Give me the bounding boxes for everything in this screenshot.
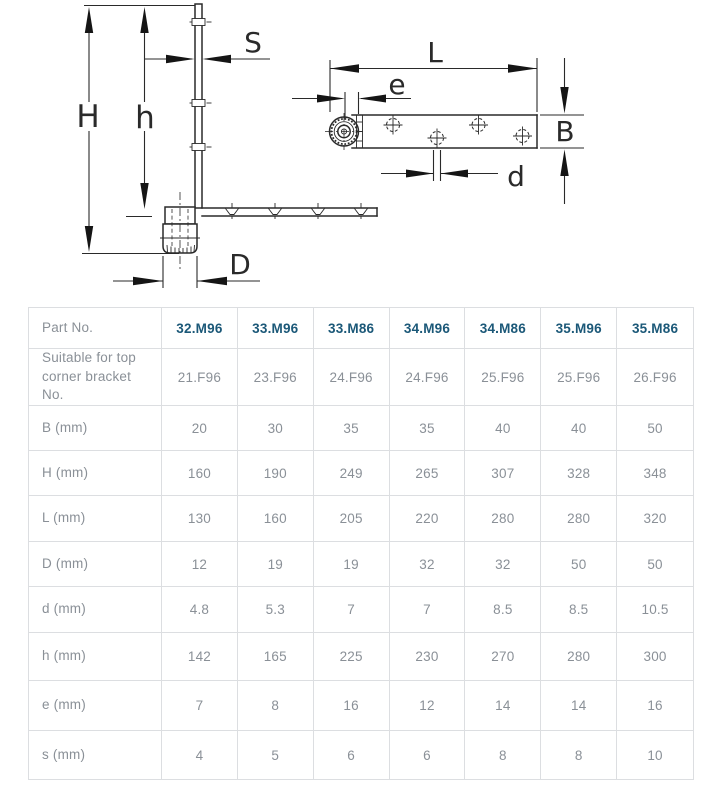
arrow-left-icon — [441, 170, 469, 178]
dim-B: B — [540, 58, 584, 204]
part-number-cell: 34.M86 — [465, 308, 541, 349]
value-cell: 205 — [314, 496, 390, 542]
value-cell: 8 — [465, 731, 541, 779]
row-label: h (mm) — [29, 633, 162, 681]
arrow-down-icon — [140, 183, 148, 209]
value-cell: 50 — [617, 542, 693, 587]
value-cell: 25.F96 — [465, 349, 541, 406]
value-cell: 320 — [617, 496, 693, 542]
dim-label-S: S — [244, 26, 262, 59]
value-cell: 160 — [238, 496, 314, 542]
value-cell: 8.5 — [465, 587, 541, 633]
arrow-left-icon — [197, 277, 227, 285]
value-cell: 249 — [314, 451, 390, 496]
dim-label-h: h — [135, 100, 155, 136]
value-cell: 190 — [238, 451, 314, 496]
row-label: B (mm) — [29, 406, 162, 451]
value-cell: 230 — [390, 633, 466, 681]
arrow-right-icon — [406, 170, 434, 178]
value-cell: 270 — [465, 633, 541, 681]
value-cell: 19 — [314, 542, 390, 587]
value-cell: 32 — [465, 542, 541, 587]
dim-label-B: B — [555, 115, 574, 148]
strap-hinge-top-view: L e B d — [292, 36, 584, 204]
value-cell: 5 — [238, 731, 314, 779]
value-cell: 280 — [541, 633, 617, 681]
part-number-cell: 33.M86 — [314, 308, 390, 349]
value-cell: 25.F96 — [541, 349, 617, 406]
arrow-up-icon — [140, 7, 148, 33]
row-label: Suitable for top corner bracket No. — [29, 349, 162, 406]
value-cell: 40 — [465, 406, 541, 451]
arrow-left-icon — [359, 95, 387, 103]
arrow-up-icon — [560, 150, 568, 177]
value-cell: 12 — [390, 681, 466, 731]
value-cell: 5.3 — [238, 587, 314, 633]
value-cell: 4.8 — [162, 587, 238, 633]
col-header-part-no: Part No. — [29, 308, 162, 349]
row-label: e (mm) — [29, 681, 162, 731]
part-number-cell: 35.M96 — [541, 308, 617, 349]
part-number-cell: 34.M96 — [390, 308, 466, 349]
dim-e: e — [292, 68, 411, 119]
value-cell: 50 — [617, 406, 693, 451]
value-cell: 12 — [162, 542, 238, 587]
part-number-cell: 32.M96 — [162, 308, 238, 349]
value-cell: 14 — [541, 681, 617, 731]
value-cell: 7 — [314, 587, 390, 633]
value-cell: 19 — [238, 542, 314, 587]
value-cell: 7 — [162, 681, 238, 731]
value-cell: 348 — [617, 451, 693, 496]
value-cell: 142 — [162, 633, 238, 681]
arrow-right-icon — [317, 95, 345, 103]
value-cell: 40 — [541, 406, 617, 451]
value-cell: 50 — [541, 542, 617, 587]
value-cell: 7 — [390, 587, 466, 633]
value-cell: 10.5 — [617, 587, 693, 633]
part-number-cell: 33.M96 — [238, 308, 314, 349]
value-cell: 130 — [162, 496, 238, 542]
dim-label-e: e — [388, 68, 405, 101]
value-cell: 6 — [314, 731, 390, 779]
row-label: d (mm) — [29, 587, 162, 633]
dim-label-d: d — [507, 160, 525, 193]
arrow-left-icon — [330, 64, 359, 72]
value-cell: 4 — [162, 731, 238, 779]
value-cell: 16 — [314, 681, 390, 731]
value-cell: 160 — [162, 451, 238, 496]
value-cell: 35 — [314, 406, 390, 451]
dim-L: L — [330, 36, 537, 112]
arrow-down-icon — [85, 226, 93, 252]
value-cell: 10 — [617, 731, 693, 779]
value-cell: 165 — [238, 633, 314, 681]
arrow-down-icon — [560, 87, 568, 114]
value-cell: 26.F96 — [617, 349, 693, 406]
value-cell: 21.F96 — [162, 349, 238, 406]
value-cell: 35 — [390, 406, 466, 451]
value-cell: 300 — [617, 633, 693, 681]
value-cell: 16 — [617, 681, 693, 731]
value-cell: 14 — [465, 681, 541, 731]
corner-hinge-side-view: H h S D — [76, 4, 377, 288]
value-cell: 280 — [465, 496, 541, 542]
value-cell: 225 — [314, 633, 390, 681]
dim-S: S — [145, 26, 271, 63]
value-cell: 220 — [390, 496, 466, 542]
dim-label-L: L — [427, 36, 443, 69]
row-label: H (mm) — [29, 451, 162, 496]
row-label: L (mm) — [29, 496, 162, 542]
strap-knuckle — [325, 113, 363, 150]
value-cell: 328 — [541, 451, 617, 496]
value-cell: 24.F96 — [314, 349, 390, 406]
value-cell: 8 — [541, 731, 617, 779]
row-label: s (mm) — [29, 731, 162, 779]
value-cell: 8 — [238, 681, 314, 731]
value-cell: 280 — [541, 496, 617, 542]
value-cell: 307 — [465, 451, 541, 496]
dim-label-H: H — [76, 99, 99, 135]
value-cell: 8.5 — [541, 587, 617, 633]
strap-body — [352, 115, 537, 148]
arrow-right-icon — [166, 55, 195, 63]
dim-d: d — [381, 150, 525, 193]
strap-hole-marks — [384, 116, 533, 148]
value-cell: 6 — [390, 731, 466, 779]
gudgeon-pin — [160, 192, 200, 270]
dim-label-D: D — [229, 248, 251, 281]
value-cell: 265 — [390, 451, 466, 496]
spec-table: Part No. 32.M96 33.M96 33.M86 34.M96 34.… — [28, 307, 694, 780]
arrow-left-icon — [203, 55, 232, 63]
value-cell: 20 — [162, 406, 238, 451]
arrow-right-icon — [133, 277, 163, 285]
part-number-cell: 35.M86 — [617, 308, 693, 349]
dim-h: h — [126, 7, 155, 217]
technical-drawing: H h S D — [0, 0, 720, 305]
value-cell: 24.F96 — [390, 349, 466, 406]
arrow-up-icon — [85, 7, 93, 33]
value-cell: 23.F96 — [238, 349, 314, 406]
value-cell: 30 — [238, 406, 314, 451]
row-label: D (mm) — [29, 542, 162, 587]
value-cell: 32 — [390, 542, 466, 587]
arrow-right-icon — [508, 64, 537, 72]
